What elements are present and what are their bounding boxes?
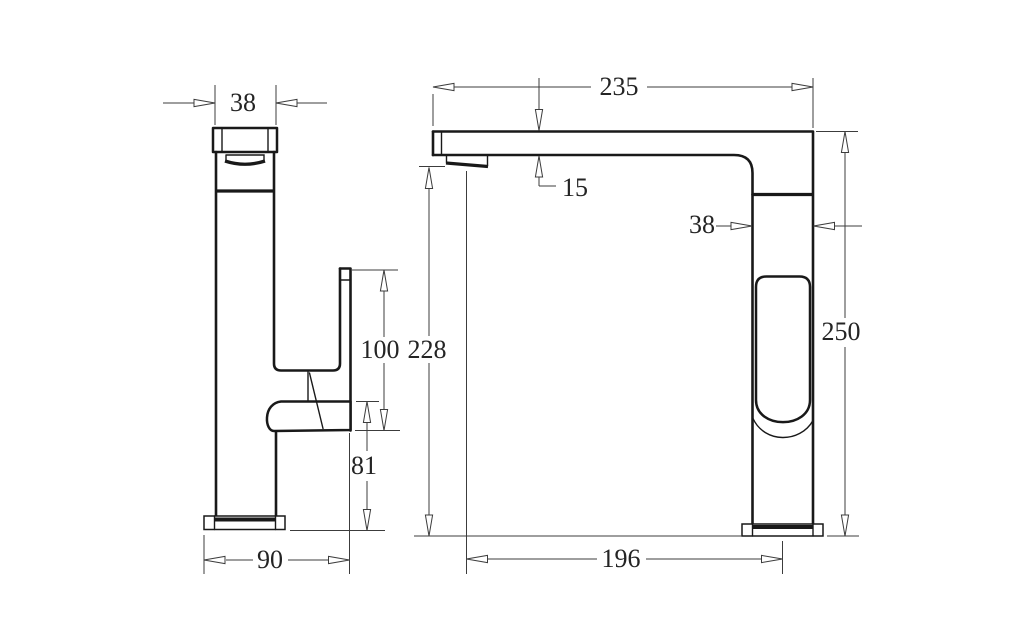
dim-label: 235 bbox=[600, 72, 639, 101]
arrowhead bbox=[731, 222, 752, 229]
arrowhead bbox=[329, 556, 350, 563]
arrowhead bbox=[363, 510, 370, 531]
arrowhead bbox=[425, 168, 432, 189]
dim-label: 81 bbox=[351, 451, 377, 480]
arrowhead bbox=[433, 83, 454, 90]
side-aerator-outline bbox=[226, 155, 264, 161]
dim-side-handle-length-100: 100 bbox=[352, 270, 400, 431]
dim-label: 38 bbox=[689, 210, 715, 239]
dim-extension-lines bbox=[467, 171, 783, 574]
arrowhead bbox=[276, 99, 297, 106]
faucet-dimension-drawing: 38 100 81 90 235 15 bbox=[0, 0, 1024, 637]
dim-label: 90 bbox=[257, 545, 283, 574]
dim-label: 100 bbox=[361, 335, 400, 364]
side-body-right-edge-and-handle-ledge bbox=[274, 152, 340, 371]
arrowhead bbox=[425, 515, 432, 536]
arrowhead bbox=[363, 402, 370, 423]
arrowhead bbox=[194, 99, 215, 106]
dim-label: 38 bbox=[230, 88, 256, 117]
dim-front-spout-reach-235: 235 bbox=[433, 72, 813, 131]
dim-label: 228 bbox=[408, 335, 447, 364]
arrowhead bbox=[762, 555, 783, 562]
dim-front-overall-height-250: 250 bbox=[816, 132, 861, 537]
dim-label: 15 bbox=[562, 173, 588, 202]
dim-front-body-width-38: 38 bbox=[689, 210, 862, 239]
side-view bbox=[204, 128, 351, 530]
front-handle bbox=[756, 277, 810, 423]
front-spout-underside bbox=[433, 155, 753, 195]
arrowhead bbox=[204, 556, 225, 563]
arrowhead bbox=[467, 555, 488, 562]
dim-front-reach-to-center-196: 196 bbox=[414, 171, 783, 574]
front-aerator-lip bbox=[446, 163, 488, 167]
leader-line bbox=[539, 177, 556, 186]
arrowhead bbox=[535, 110, 542, 131]
arrowhead bbox=[841, 515, 848, 536]
dim-label: 196 bbox=[602, 544, 641, 573]
drawing-canvas: 38 100 81 90 235 15 bbox=[0, 0, 1024, 637]
arrowhead bbox=[814, 222, 835, 229]
side-aerator-lip bbox=[225, 161, 265, 164]
arrowhead bbox=[380, 270, 387, 291]
dim-label: 250 bbox=[822, 317, 861, 346]
dim-side-spout-width-38: 38 bbox=[163, 85, 327, 125]
side-pivot-housing bbox=[267, 402, 351, 432]
dim-front-spout-thickness-15: 15 bbox=[535, 156, 588, 202]
dim-front-underspout-height-228: 228 bbox=[408, 167, 447, 537]
arrowhead bbox=[535, 156, 542, 177]
arrowhead bbox=[380, 410, 387, 431]
front-view bbox=[433, 132, 823, 537]
arrowhead bbox=[792, 83, 813, 90]
arrowhead bbox=[841, 132, 848, 153]
